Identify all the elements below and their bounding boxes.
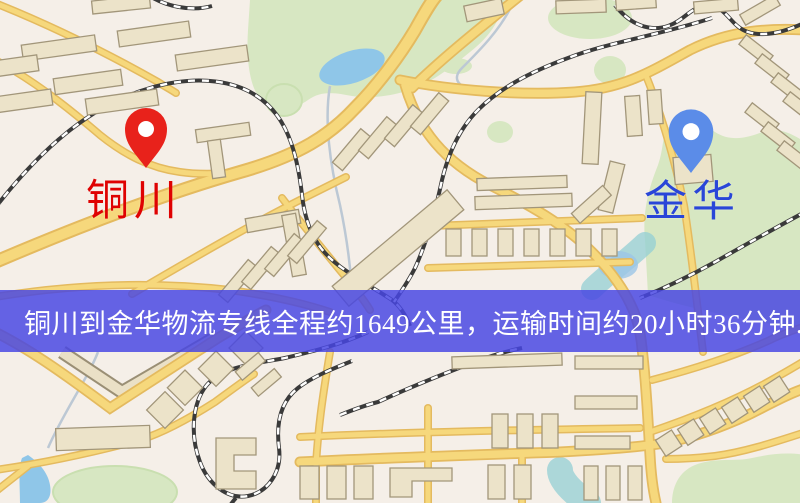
route-info-banner: 铜川到金华物流专线全程约1649公里，运输时间约20小时36分钟. [0,290,800,352]
logistics-route-map: 铜川 金华 铜川到金华物流专线全程约1649公里，运输时间约20小时36分钟. [0,0,800,503]
origin-city-label: 铜川 [86,180,182,223]
map-canvas [0,0,800,503]
destination-city-label: 金华 [644,181,740,224]
route-info-text: 铜川到金华物流专线全程约1649公里，运输时间约20小时36分钟. [24,302,800,341]
